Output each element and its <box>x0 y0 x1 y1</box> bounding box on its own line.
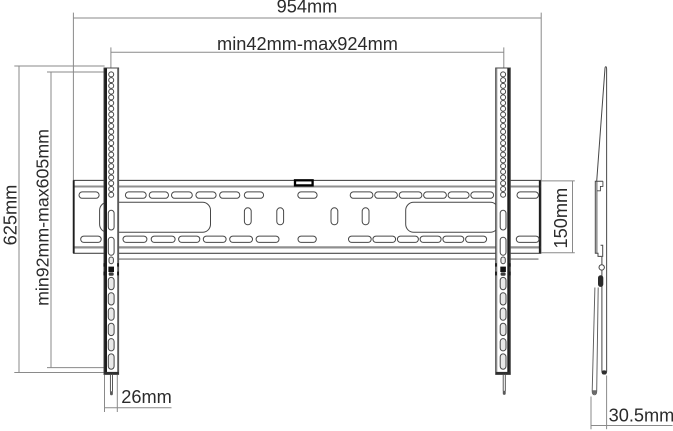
svg-text:min42mm-max924mm: min42mm-max924mm <box>217 34 398 54</box>
svg-text:26mm: 26mm <box>121 387 172 407</box>
svg-text:954mm: 954mm <box>277 0 338 17</box>
svg-text:min92mm-max605mm: min92mm-max605mm <box>33 129 53 306</box>
svg-text:625mm: 625mm <box>1 185 21 246</box>
svg-text:150mm: 150mm <box>551 188 571 249</box>
svg-text:30.5mm: 30.5mm <box>609 405 673 425</box>
